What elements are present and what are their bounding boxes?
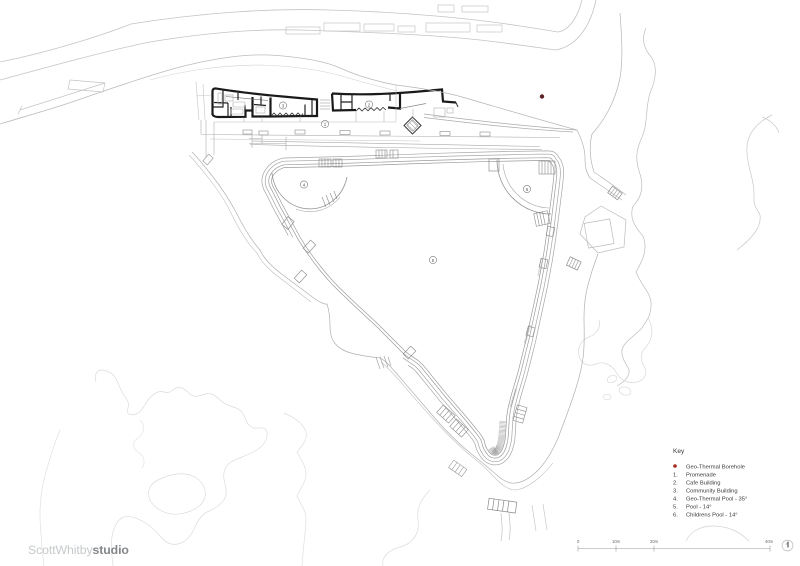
svg-text:4.: 4. [673,497,678,503]
svg-text:3.: 3. [673,489,678,495]
svg-text:Cafe Building: Cafe Building [686,481,720,487]
svg-text:2.: 2. [673,481,678,487]
svg-text:40m: 40m [765,539,774,544]
svg-text:Geo-Thermal Pool - 35°: Geo-Thermal Pool - 35° [686,497,747,503]
svg-text:10m: 10m [612,539,621,544]
svg-text:Key: Key [673,448,685,455]
svg-text:Childrens Pool - 14°: Childrens Pool - 14° [686,513,738,519]
svg-text:20m: 20m [650,539,659,544]
svg-text:Community Building: Community Building [686,489,738,495]
svg-text:Geo-Thermal Borehole: Geo-Thermal Borehole [686,465,745,471]
svg-text:Promenade: Promenade [686,473,716,479]
svg-text:6.: 6. [673,513,678,519]
svg-text:ScottWhitbystudio: ScottWhitbystudio [28,543,129,557]
svg-text:1.: 1. [673,473,678,479]
svg-text:Pool - 14°: Pool - 14° [686,505,712,511]
svg-text:5.: 5. [673,505,678,511]
